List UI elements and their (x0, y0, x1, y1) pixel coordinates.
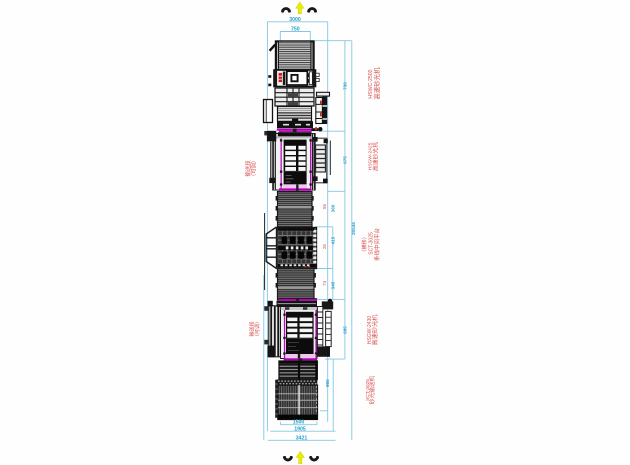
svg-text:750: 750 (291, 27, 300, 33)
svg-text:（横移）: （横移） (360, 234, 368, 255)
svg-text:345: 345 (331, 281, 336, 289)
svg-text:975: 975 (343, 156, 348, 164)
svg-text:3421: 3421 (296, 435, 308, 441)
svg-text:960: 960 (325, 379, 330, 387)
svg-text:985: 985 (343, 326, 348, 334)
svg-text:20546: 20546 (351, 222, 356, 235)
svg-text:SCT-3025: SCT-3025 (368, 232, 374, 255)
svg-text:25: 25 (322, 244, 327, 249)
svg-text:730: 730 (343, 82, 348, 90)
svg-text:360: 360 (331, 204, 336, 212)
svg-text:输送段: 输送段 (248, 321, 255, 336)
svg-text:输送段: 输送段 (244, 160, 252, 177)
svg-text:HSGW-2430: HSGW-2430 (367, 316, 373, 344)
svg-text:1905: 1905 (294, 426, 306, 432)
svg-text:1500: 1500 (293, 420, 305, 426)
svg-text:3000: 3000 (289, 17, 301, 23)
svg-text:74: 74 (322, 280, 327, 285)
svg-text:SCT-3025: SCT-3025 (365, 379, 371, 401)
svg-text:55: 55 (322, 204, 327, 209)
svg-text:HSWC-2500: HSWC-2500 (368, 69, 374, 98)
svg-text:415: 415 (331, 236, 336, 244)
svg-text:HSGW-2425: HSGW-2425 (368, 142, 374, 170)
